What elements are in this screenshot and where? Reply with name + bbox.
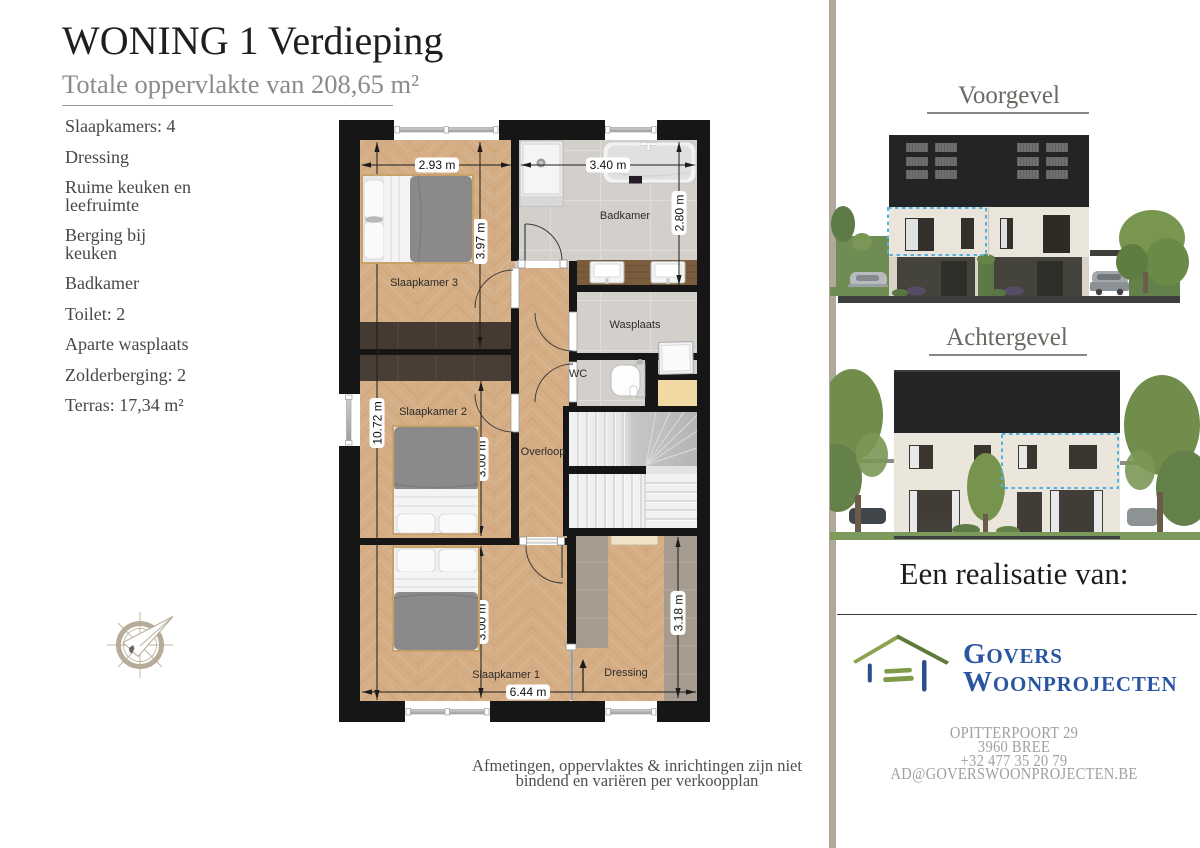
svg-text:Slaapkamer 3: Slaapkamer 3: [390, 277, 458, 289]
svg-text:10.72 m: 10.72 m: [371, 401, 385, 444]
svg-text:3.97 m: 3.97 m: [474, 223, 488, 260]
svg-text:6.44 m: 6.44 m: [510, 685, 547, 699]
svg-text:Slaapkamer 1: Slaapkamer 1: [472, 669, 540, 681]
svg-text:Slaapkamer 2: Slaapkamer 2: [399, 406, 467, 418]
svg-text:Overloop: Overloop: [521, 446, 566, 458]
svg-text:WC: WC: [569, 368, 587, 380]
svg-text:2.80 m: 2.80 m: [673, 195, 687, 232]
svg-text:3.18 m: 3.18 m: [672, 595, 686, 632]
svg-text:Badkamer: Badkamer: [600, 210, 650, 222]
svg-text:3.40 m: 3.40 m: [590, 158, 627, 172]
svg-text:Dressing: Dressing: [604, 667, 647, 679]
svg-text:Wasplaats: Wasplaats: [610, 319, 661, 331]
svg-text:2.93 m: 2.93 m: [419, 158, 456, 172]
